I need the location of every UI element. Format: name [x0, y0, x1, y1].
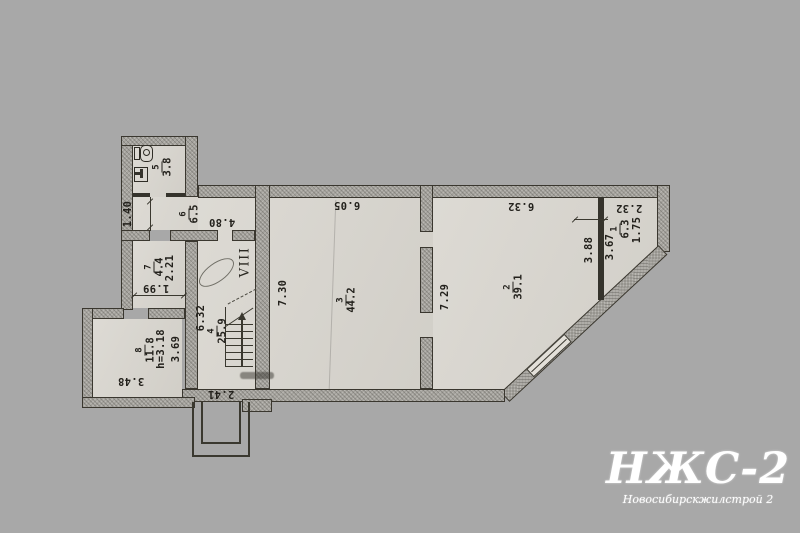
wall-room3-room2-a	[420, 185, 433, 232]
dimline-room7-width	[133, 295, 185, 296]
room-area: 6.3	[621, 220, 632, 239]
stair-tread	[225, 331, 253, 332]
dim-room1-left-depth: 3.67	[604, 234, 616, 261]
room-area: 44.2	[347, 287, 358, 312]
toilet-bowl-circle-icon	[143, 149, 150, 156]
watermark: НЖС-2 Новосибирскжилстрой 2	[598, 446, 798, 506]
scan-smudge	[240, 372, 274, 379]
room-area: 6.5	[190, 205, 201, 224]
wall-right-main	[657, 185, 670, 252]
dim-room8-width: 3.48	[118, 375, 145, 387]
wall-room3-room2-c	[420, 337, 433, 389]
dim-room3-width: 6.05	[334, 199, 361, 211]
stair-tread	[225, 359, 253, 360]
wall-room5-door-left	[133, 193, 150, 197]
room-label-7: 7 4.4	[145, 258, 166, 277]
dim-room8-ceiling-height: h=3.18	[155, 329, 167, 369]
room-label-4: 4 25.9	[208, 318, 229, 343]
dim-room7-depth: 2.21	[164, 255, 176, 282]
room-label-6: 6 6.5	[180, 205, 201, 224]
stair-tread	[225, 338, 253, 339]
dim-stairwell-length: 6.32	[195, 305, 207, 332]
dim-room2-right-depth: 3.88	[583, 237, 595, 264]
room-area: 3.8	[163, 158, 174, 177]
watermark-title: НЖС-2	[598, 446, 798, 492]
wall-room3-left	[255, 185, 270, 389]
stair-tread	[225, 345, 253, 346]
wall-corridor-bottom-a	[121, 230, 150, 241]
scanned-floor-plan: 5 3.8 6 6.5 7 4.4 8 11.8 4 25.9 3 44.2 2…	[0, 0, 800, 533]
wall-room8-left	[82, 308, 93, 408]
wall-room8-bottom	[82, 397, 195, 408]
stair-arrow-head	[238, 312, 246, 320]
room-label-2: 2 39.1	[504, 274, 525, 299]
room-label-3: 3 44.2	[337, 287, 358, 312]
room-label-8: 8 11.8	[136, 337, 157, 362]
wall-room5-right	[185, 136, 198, 197]
stair-tread	[225, 352, 253, 353]
wall-corridor-bottom-c	[232, 230, 255, 241]
dim-room8-depth: 3.69	[170, 336, 182, 363]
room-area: 39.1	[514, 274, 525, 299]
dim-stairwell-width: 2.41	[208, 388, 235, 400]
stairwell-section-label: VIII	[238, 247, 253, 278]
sink-tap-icon	[140, 169, 143, 178]
dim-room2-width: 6.32	[508, 200, 535, 212]
watermark-subtitle: Новосибирскжилстрой 2	[598, 493, 798, 506]
stair-arrow-stem	[241, 320, 243, 367]
wall-room8-top-b	[148, 308, 185, 319]
porch-inner	[201, 402, 241, 444]
dim-room2-depth: 7.29	[439, 284, 451, 311]
wall-room3-room2-b	[420, 247, 433, 313]
stair-tread	[225, 366, 253, 367]
room-area: 25.9	[218, 318, 229, 343]
wall-corridor-bottom-b	[170, 230, 218, 241]
dim-room1-right-depth: 1.75	[631, 217, 643, 244]
dim-room7-width: 1.99	[143, 282, 170, 294]
dim-room1-width: 2.32	[616, 202, 643, 214]
dim-room3-depth: 7.30	[277, 280, 289, 307]
dim-corridor-width: 1.40	[122, 201, 134, 228]
wall-room5-door-right	[166, 193, 185, 197]
dim-corridor-length: 4.80	[209, 216, 236, 228]
room-label-5: 5 3.8	[153, 158, 174, 177]
stair-tread	[225, 324, 253, 325]
